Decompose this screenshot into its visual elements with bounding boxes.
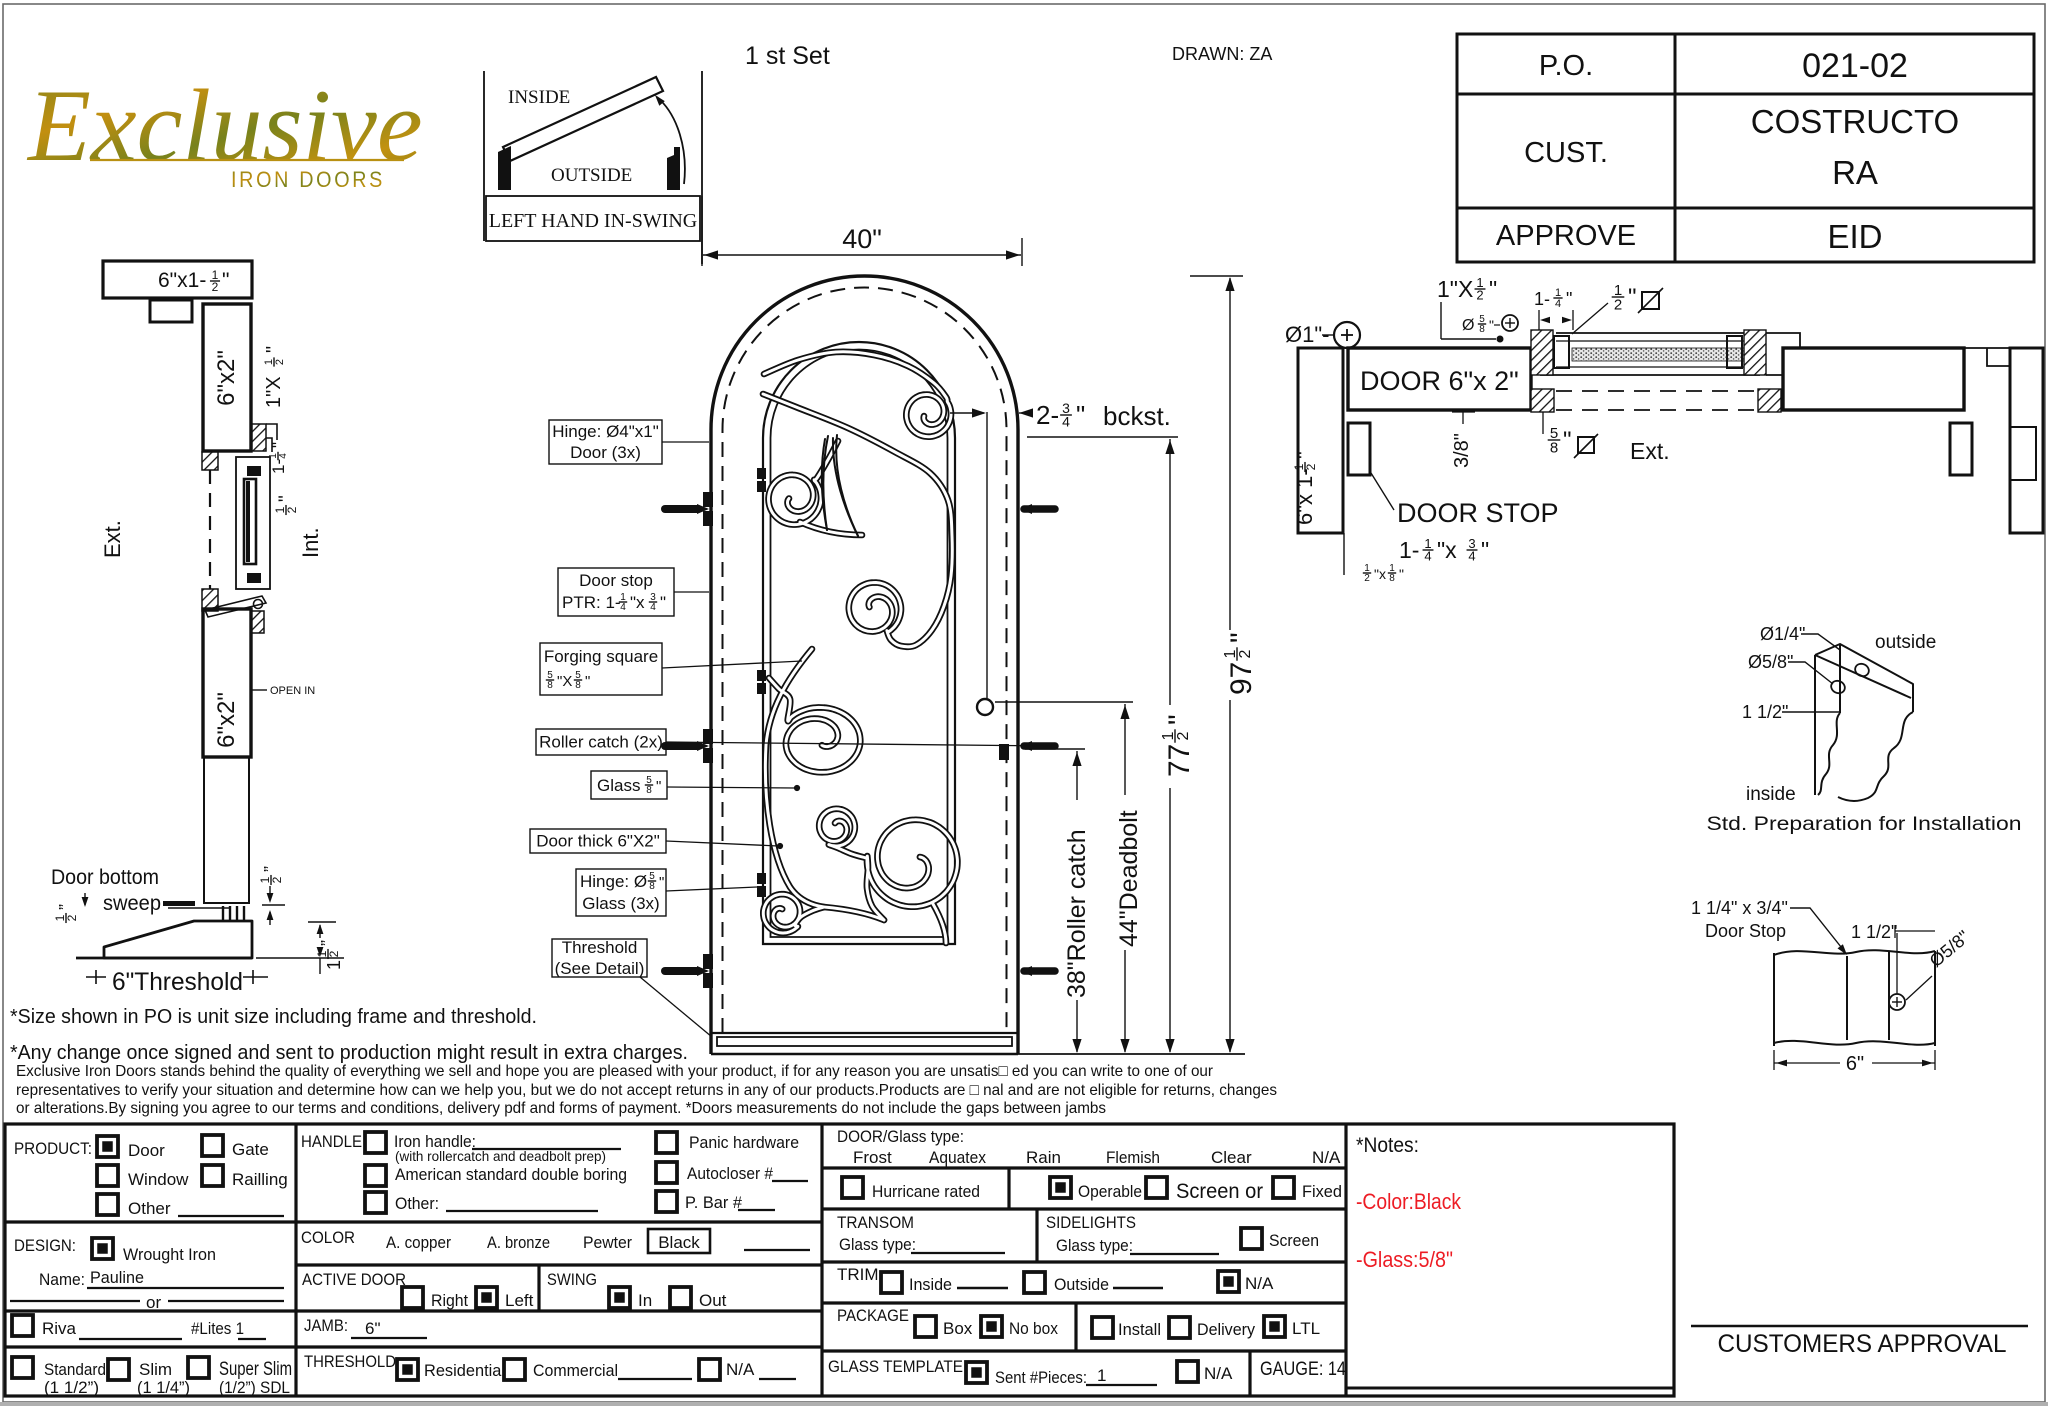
svg-text:Glass type:: Glass type: [1056,1236,1133,1255]
svg-text:*Any change once signed and se: *Any change once signed and sent to prod… [10,1042,688,1064]
svg-text:Hurricane rated: Hurricane rated [872,1182,980,1201]
svg-text:sweep: sweep [103,892,161,915]
svg-text:THRESHOLD: THRESHOLD [304,1352,396,1371]
svg-text:Screen or: Screen or [1176,1180,1263,1203]
svg-text:8: 8 [1550,439,1558,456]
svg-text:OUTSIDE: OUTSIDE [551,165,632,186]
svg-text:2: 2 [1364,573,1370,584]
svg-text:4: 4 [1062,413,1070,429]
svg-text:1-: 1- [1534,289,1550,309]
svg-text:N/A: N/A [1204,1364,1233,1383]
svg-text:": " [659,874,664,891]
svg-text:4: 4 [1424,549,1431,564]
svg-text:(with rollercatch and deadbolt: (with rollercatch and deadbolt prep) [395,1148,606,1164]
svg-text:1 st Set: 1 st Set [745,42,830,70]
svg-text:": " [1566,289,1572,309]
svg-text:Rain: Rain [1026,1148,1061,1167]
svg-text:Door stop: Door stop [579,571,653,590]
svg-text:2-: 2- [1036,400,1059,430]
svg-text:JAMB:: JAMB: [304,1316,348,1335]
svg-text:P. Bar #: P. Bar # [685,1193,743,1212]
svg-text:2: 2 [1175,731,1192,740]
svg-text:SWING: SWING [547,1270,597,1289]
svg-text:American standard double borin: American standard double boring [395,1165,627,1184]
svg-text:8: 8 [1479,324,1485,335]
svg-text:Glass (3x): Glass (3x) [582,894,659,913]
svg-text:Black: Black [658,1233,700,1252]
svg-text:Wrought Iron: Wrought Iron [123,1245,216,1264]
svg-text:N/A: N/A [726,1360,755,1379]
svg-text:2: 2 [1614,296,1622,313]
svg-text:Out: Out [699,1291,727,1310]
svg-text:Right: Right [431,1291,468,1310]
svg-text:Door bottom: Door bottom [51,866,159,889]
svg-text:Ø1/4": Ø1/4" [1760,624,1805,644]
svg-text:": " [1076,400,1085,430]
svg-text:P.O.: P.O. [1539,50,1593,82]
svg-text:”: ” [318,940,338,946]
svg-text:(1 1/2”): (1 1/2”) [44,1378,99,1397]
svg-text:SIDELIGHTS: SIDELIGHTS [1046,1213,1136,1232]
svg-text:1: 1 [324,960,344,970]
svg-text:ACTIVE DOOR: ACTIVE DOOR [302,1270,406,1289]
svg-text:Super Slim: Super Slim [219,1359,292,1380]
svg-text:Hinge: Ø4"x1": Hinge: Ø4"x1" [552,422,659,441]
svg-text:Railling: Railling [232,1170,288,1189]
svg-text:representatives to verify your: representatives to verify your situation… [16,1082,1277,1099]
svg-text:Door (3x): Door (3x) [570,443,641,462]
svg-text:"x: "x [1374,566,1386,582]
svg-text:Operable: Operable [1078,1182,1142,1201]
svg-text:DOOR/Glass type:: DOOR/Glass type: [837,1127,964,1146]
svg-text:Ext.: Ext. [100,520,125,558]
svg-text:Glass type:: Glass type: [839,1235,916,1254]
svg-text:8: 8 [646,785,652,796]
svg-text:1 1/2": 1 1/2" [1742,702,1788,722]
svg-text:LTL: LTL [1292,1319,1320,1338]
svg-text:Door thick 6"X2": Door thick 6"X2" [536,832,660,851]
svg-text:IRON DOORS: IRON DOORS [231,167,385,192]
svg-text:1"X: 1"X [263,376,285,408]
svg-text:Screen: Screen [1269,1231,1319,1250]
svg-text:Window: Window [128,1170,189,1189]
svg-text:6"Threshold: 6"Threshold [112,968,243,996]
svg-text:1 1/2": 1 1/2" [1851,922,1897,942]
svg-text:1"X: 1"X [1437,276,1473,302]
svg-text:Door: Door [128,1141,165,1160]
svg-text:Commercial: Commercial [533,1361,618,1380]
svg-text:1 1/4" x 3/4": 1 1/4" x 3/4" [1691,898,1788,918]
svg-text:2: 2 [285,506,299,513]
svg-text:-Glass:5/8": -Glass:5/8" [1356,1247,1453,1272]
svg-text:”: ” [261,866,281,872]
svg-text:38"Roller catch: 38"Roller catch [1063,829,1091,998]
svg-text:*Size shown in PO is unit size: *Size shown in PO is unit size including… [10,1006,537,1028]
svg-text:Sent #Pieces:: Sent #Pieces: [995,1368,1087,1387]
svg-text:RA: RA [1832,154,1878,191]
svg-text:Gate: Gate [232,1140,269,1159]
svg-text:COSTRUCTO: COSTRUCTO [1751,103,1959,140]
svg-text:77: 77 [1163,744,1196,777]
svg-text:": " [585,673,590,690]
svg-text:2: 2 [212,280,219,294]
svg-text:-Color:Black: -Color:Black [1356,1189,1462,1214]
svg-text:N/A: N/A [1245,1274,1274,1293]
svg-text:": " [660,593,666,612]
svg-text:2: 2 [327,950,341,957]
svg-text:Residential: Residential [424,1361,505,1380]
svg-text:CUSTOMERS APPROVAL: CUSTOMERS APPROVAL [1718,1330,2007,1358]
svg-text:OPEN IN: OPEN IN [270,685,315,697]
svg-text:Std. Preparation for Installat: Std. Preparation for Installation [1707,814,2022,835]
svg-text:2: 2 [274,359,286,365]
svg-text:Hinge: Ø: Hinge: Ø [580,872,647,891]
svg-text:Roller catch (2x): Roller catch (2x) [539,733,663,752]
svg-text:Ext.: Ext. [1630,438,1670,464]
svg-text:": " [222,269,229,292]
svg-text:": " [1163,714,1196,725]
svg-text:#Lites 1: #Lites 1 [191,1319,244,1338]
svg-text:8: 8 [649,881,655,892]
svg-text:6"x2": 6"x2" [213,692,240,748]
svg-text:": " [1628,284,1637,311]
svg-text:*Notes:: *Notes: [1356,1134,1419,1157]
svg-text:Left: Left [505,1291,534,1310]
svg-text:Flemish: Flemish [1106,1148,1160,1167]
svg-text:Forging square: Forging square [544,647,658,666]
svg-text:N/A: N/A [1312,1148,1341,1167]
svg-text:Install: Install [1118,1320,1161,1339]
svg-text:PRODUCT:: PRODUCT: [14,1139,92,1158]
svg-text:4: 4 [620,602,626,613]
svg-text:2: 2 [1237,649,1254,658]
svg-text:Panic hardware: Panic hardware [689,1133,799,1152]
svg-text:Fixed: Fixed [1302,1182,1342,1201]
svg-text:Glass: Glass [597,776,640,795]
svg-text:LEFT HAND IN-SWING: LEFT HAND IN-SWING [489,210,698,232]
svg-text:DESIGN:: DESIGN: [14,1236,76,1255]
svg-text:(1 1/4”): (1 1/4”) [137,1378,190,1397]
svg-text:(See Detail): (See Detail) [555,959,645,978]
svg-text:": " [656,778,661,795]
svg-text:2: 2 [270,876,284,883]
svg-text:"x: "x [1437,537,1457,563]
svg-text:(1/2”) SDL: (1/2”) SDL [219,1378,290,1397]
svg-text:Frost: Frost [853,1148,892,1167]
svg-text:4: 4 [1555,298,1561,310]
svg-text:Inside: Inside [909,1275,952,1294]
svg-text:6": 6" [1846,1053,1864,1075]
svg-text:A. copper: A. copper [386,1233,451,1252]
svg-text:": " [1563,427,1572,454]
svg-text:Ø1"-: Ø1"- [1285,322,1329,347]
svg-text:Threshold: Threshold [562,938,638,957]
svg-text:Int.: Int. [298,527,323,558]
svg-text:Aquatex: Aquatex [929,1148,986,1167]
svg-text:6": 6" [365,1319,381,1338]
svg-text:40": 40" [842,224,882,254]
svg-text:Standard: Standard [44,1360,106,1379]
svg-text:6"x 1-: 6"x 1- [1292,468,1317,525]
svg-text:”: ” [56,904,76,910]
svg-text:": " [1225,632,1258,643]
svg-text:"x: "x [630,593,645,612]
svg-text:Autocloser #: Autocloser # [687,1164,773,1183]
svg-text:inside: inside [1746,784,1796,805]
svg-text:6"x2": 6"x2" [213,350,240,406]
svg-text:DOOR STOP: DOOR STOP [1397,498,1559,528]
svg-text:8: 8 [575,680,581,691]
svg-text:TRIM: TRIM [837,1265,879,1284]
svg-text:44"Deadbolt: 44"Deadbolt [1115,810,1143,947]
svg-text:": " [269,442,288,448]
svg-text:Delivery: Delivery [1197,1320,1255,1339]
svg-text:1: 1 [1097,1366,1106,1385]
svg-text:1-: 1- [1399,537,1419,563]
svg-text:3/8": 3/8" [1451,433,1473,468]
svg-text:8: 8 [547,680,553,691]
svg-text:Other: Other [128,1199,171,1218]
svg-text:021-02: 021-02 [1802,47,1908,85]
svg-text:DRAWN: ZA: DRAWN: ZA [1172,44,1272,64]
svg-text:outside: outside [1875,632,1936,653]
svg-text:Riva: Riva [42,1319,77,1338]
svg-text:HANDLE: HANDLE [301,1132,362,1151]
svg-text:1-: 1- [269,459,288,474]
svg-text:PACKAGE: PACKAGE [837,1306,909,1325]
svg-text:Outside: Outside [1054,1275,1109,1294]
svg-text:COLOR: COLOR [301,1228,355,1247]
svg-text:GLASS TEMPLATE: GLASS TEMPLATE [828,1357,963,1376]
svg-text:Pewter: Pewter [583,1233,632,1252]
svg-text:A. bronze: A. bronze [487,1233,550,1252]
svg-text:Ø5/8": Ø5/8" [1748,652,1793,672]
svg-text:2: 2 [1304,463,1318,470]
svg-text:CUST.: CUST. [1524,137,1608,169]
svg-text:INSIDE: INSIDE [508,87,570,108]
svg-text:4: 4 [278,453,289,459]
svg-text:or: or [146,1293,161,1312]
svg-text:No box: No box [1009,1319,1058,1338]
svg-text:Door Stop: Door Stop [1705,921,1786,941]
svg-text:Other:: Other: [395,1194,439,1213]
svg-text:"X: "X [557,673,572,690]
svg-text:": " [263,346,285,353]
svg-text:Ø: Ø [1462,317,1474,334]
svg-text:TRANSOM: TRANSOM [837,1213,914,1232]
svg-text:DOOR 6"x 2": DOOR 6"x 2" [1360,366,1519,396]
svg-text:Exclusive: Exclusive [26,69,423,183]
svg-text:Slim: Slim [139,1360,172,1379]
svg-text:97: 97 [1225,662,1258,695]
svg-text:EID: EID [1827,218,1882,255]
svg-text:APPROVE: APPROVE [1496,220,1636,252]
svg-text:Clear: Clear [1211,1148,1252,1167]
svg-text:PTR: 1-: PTR: 1- [562,593,621,612]
svg-text:8: 8 [1389,573,1395,584]
svg-text:": " [1292,451,1317,459]
svg-text:GAUGE: 14: GAUGE: 14 [1260,1359,1346,1380]
svg-text:2: 2 [1476,288,1483,303]
svg-text:": " [1481,537,1489,563]
svg-text:": " [1489,276,1497,302]
svg-text:bckst.: bckst. [1103,401,1171,431]
svg-text:or alterations.By signing you: or alterations.By signing you agree to o… [16,1100,1106,1117]
svg-text:2: 2 [65,914,79,921]
svg-text:6"x1-: 6"x1- [158,269,206,292]
svg-text:": " [1489,317,1494,333]
svg-text:Box: Box [943,1319,973,1338]
svg-text:Exclusive Iron Doors stands be: Exclusive Iron Doors stands behind the q… [16,1063,1214,1080]
svg-text:4: 4 [650,602,656,613]
svg-text:In: In [638,1291,652,1310]
svg-text:": " [1399,566,1404,582]
svg-text:Pauline: Pauline [90,1268,144,1287]
svg-text:4: 4 [1468,549,1475,564]
svg-text:": " [276,495,297,502]
svg-text:Name:: Name: [39,1270,85,1289]
